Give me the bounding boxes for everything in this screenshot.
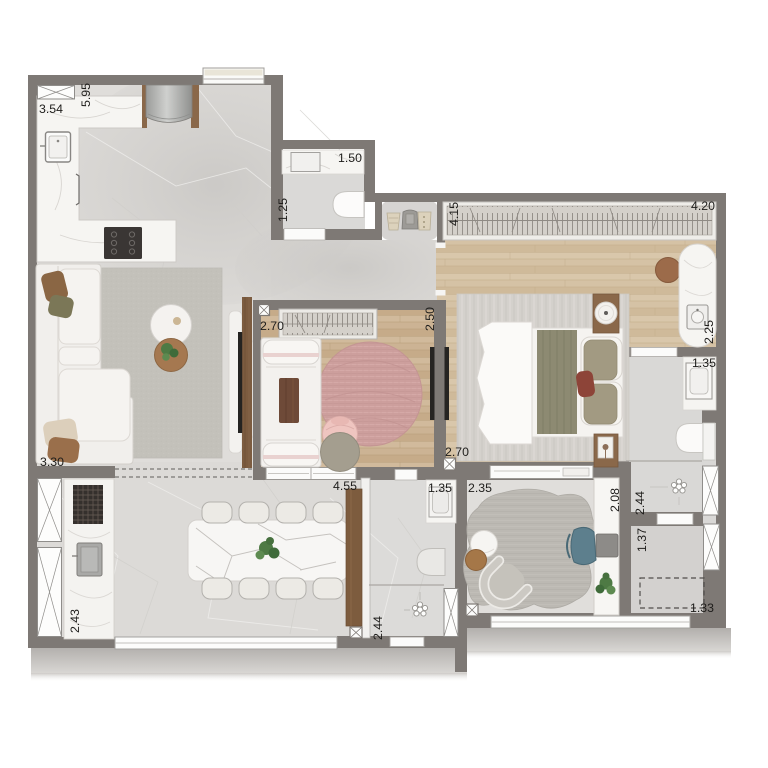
svg-text:2.44: 2.44 bbox=[371, 616, 385, 640]
svg-text:2.70: 2.70 bbox=[260, 319, 284, 333]
svg-text:2.43: 2.43 bbox=[68, 609, 82, 633]
svg-text:2.08: 2.08 bbox=[608, 488, 622, 512]
svg-text:2.44: 2.44 bbox=[633, 491, 647, 515]
svg-text:4.55: 4.55 bbox=[333, 479, 357, 493]
svg-text:1.37: 1.37 bbox=[635, 528, 649, 552]
svg-text:5.95: 5.95 bbox=[79, 83, 93, 107]
svg-text:3.30: 3.30 bbox=[40, 455, 64, 469]
svg-text:3.54: 3.54 bbox=[39, 102, 63, 116]
svg-text:4.20: 4.20 bbox=[691, 199, 715, 213]
svg-text:2.70: 2.70 bbox=[445, 445, 469, 459]
svg-text:1.35: 1.35 bbox=[428, 481, 452, 495]
svg-text:2.50: 2.50 bbox=[423, 307, 437, 331]
svg-text:2.35: 2.35 bbox=[468, 481, 492, 495]
svg-text:1.33: 1.33 bbox=[690, 601, 714, 615]
svg-text:1.35: 1.35 bbox=[692, 356, 716, 370]
svg-text:4.15: 4.15 bbox=[447, 202, 461, 226]
svg-text:1.50: 1.50 bbox=[338, 151, 362, 165]
svg-text:2.25: 2.25 bbox=[702, 320, 716, 344]
svg-text:1.25: 1.25 bbox=[276, 198, 290, 222]
